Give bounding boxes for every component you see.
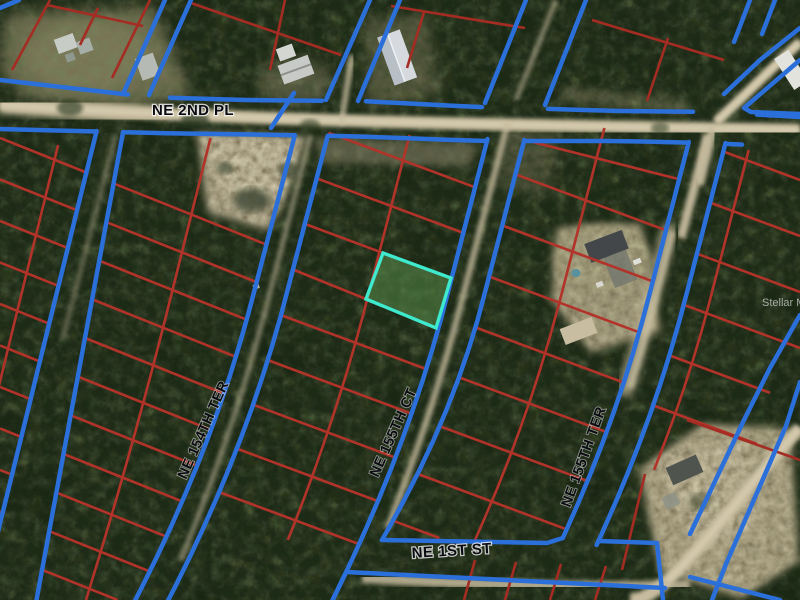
svg-text:NE 2ND PL: NE 2ND PL (152, 102, 234, 119)
svg-text:Stellar MLS: Stellar MLS (762, 297, 800, 309)
